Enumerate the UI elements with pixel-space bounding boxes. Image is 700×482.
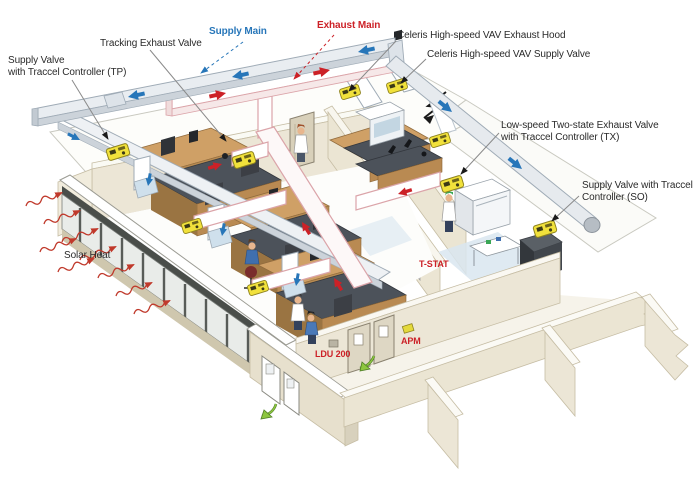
- label-solar-heat: Solar Heat: [64, 250, 110, 262]
- label-supply-main: Supply Main: [209, 26, 267, 38]
- ldu-device: [329, 340, 338, 347]
- partition-stub-3: [642, 294, 688, 380]
- label-supply-valve-so: Supply Valve with Traccel Controller (SO…: [582, 180, 693, 203]
- duct-end-cap: [584, 218, 600, 233]
- label-celeris-exhaust-hood: Celeris High-speed VAV Exhaust Hood: [397, 30, 565, 42]
- fume-hood: [455, 179, 510, 235]
- label-tracking-exhaust-valve: Tracking Exhaust Valve: [100, 38, 202, 50]
- label-ldu-200: LDU 200: [315, 349, 350, 361]
- corridor-door-2: [374, 315, 394, 364]
- label-apm: APM: [401, 336, 421, 348]
- green-airflow-arrow-2: [261, 404, 276, 419]
- partition-stub-1: [425, 377, 463, 468]
- label-celeris-supply-valve: Celeris High-speed VAV Supply Valve: [427, 49, 590, 61]
- label-supply-valve-tp: Supply Valve with Traccel Controller (TP…: [8, 55, 126, 78]
- label-t-stat: T-STAT: [419, 259, 449, 271]
- label-low-speed-tx: Low-speed Two-state Exhaust Valve with T…: [501, 120, 659, 143]
- label-exhaust-main: Exhaust Main: [317, 20, 380, 32]
- valve-icon-so: [533, 220, 558, 238]
- hvac-lab-diagram: Supply Valve with Traccel Controller (TP…: [0, 0, 700, 482]
